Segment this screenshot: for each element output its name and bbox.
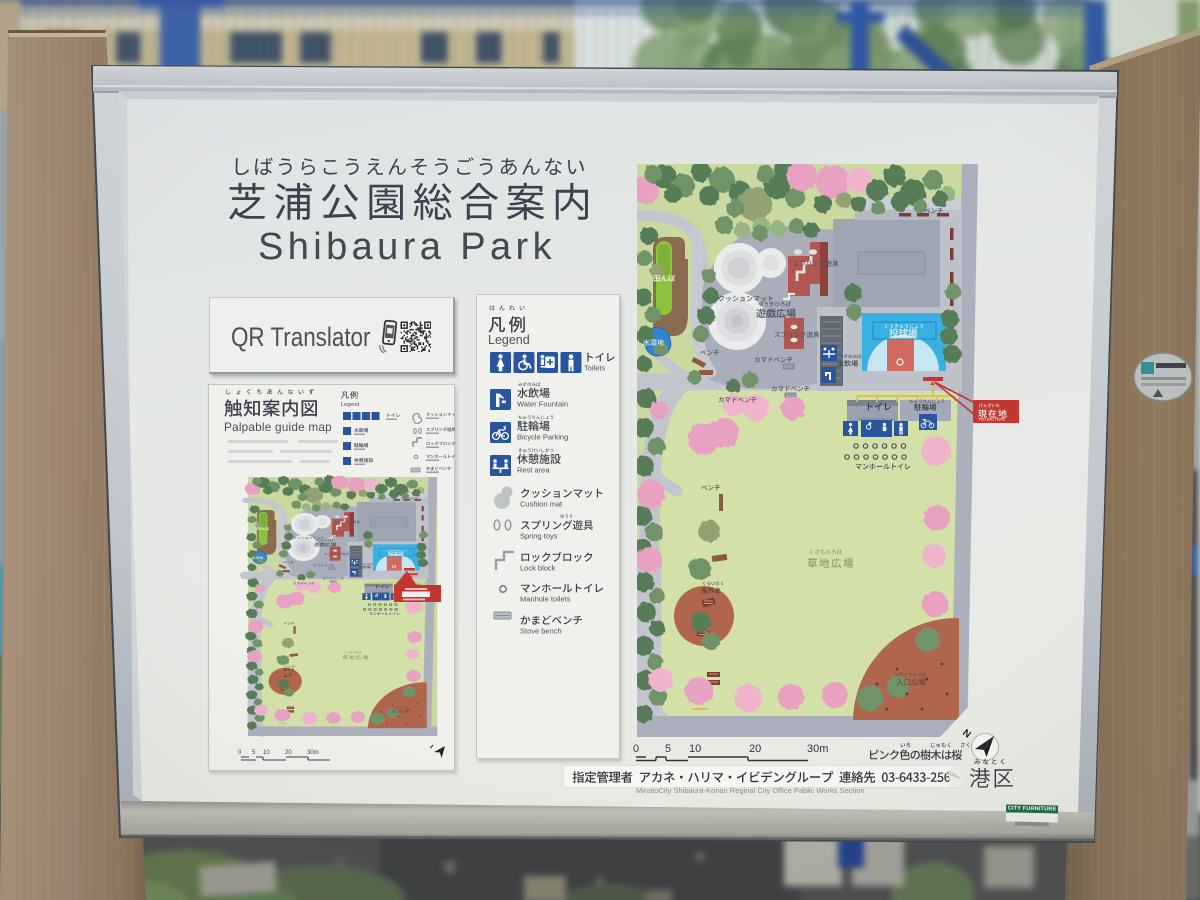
svg-text:20: 20: [749, 743, 761, 755]
svg-text:10: 10: [689, 743, 701, 755]
svg-text:Toilets: Toilets: [584, 364, 606, 373]
svg-text:0: 0: [238, 750, 242, 756]
svg-text:Stove bench: Stove bench: [520, 627, 562, 636]
svg-text:Rest area: Rest area: [517, 466, 550, 475]
svg-text:0: 0: [633, 743, 639, 755]
svg-text:Manhole toilets: Manhole toilets: [520, 595, 571, 604]
svg-text:30m: 30m: [307, 750, 319, 756]
svg-text:30m: 30m: [807, 743, 828, 755]
svg-text:N: N: [962, 728, 973, 741]
svg-text:Spring toys: Spring toys: [520, 532, 558, 541]
svg-text:Water Fountain: Water Fountain: [517, 400, 568, 409]
svg-text:5: 5: [665, 743, 671, 755]
svg-text:Legend: Legend: [341, 402, 359, 408]
svg-text:5: 5: [252, 750, 256, 756]
svg-text:You are Here: You are Here: [978, 417, 1005, 422]
svg-text:20: 20: [285, 750, 292, 756]
svg-text:Lock block: Lock block: [520, 564, 556, 573]
svg-text:Bicycle Parking: Bicycle Parking: [517, 433, 568, 442]
svg-text:Cushion mat: Cushion mat: [520, 500, 563, 509]
svg-text:Legend: Legend: [488, 333, 530, 347]
svg-text:10: 10: [263, 750, 270, 756]
